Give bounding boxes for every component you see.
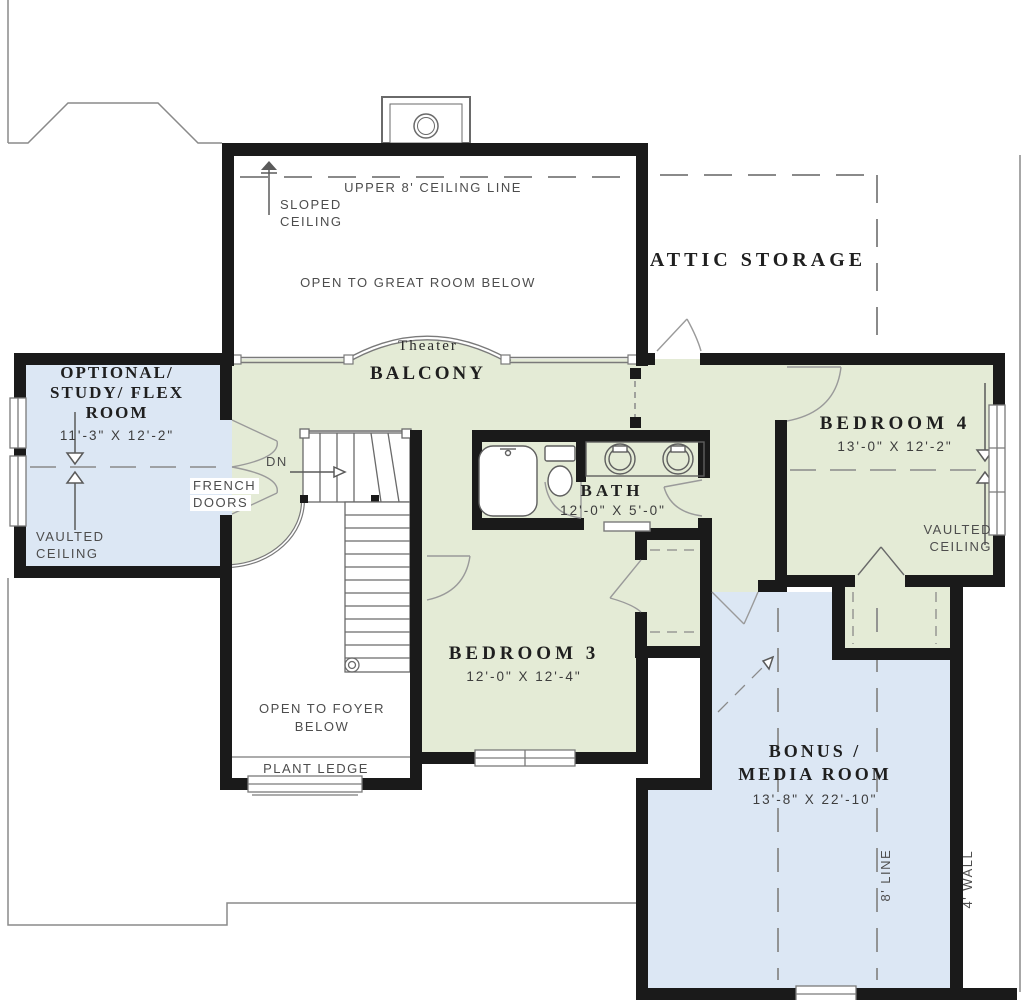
- label-bath-dims: 12'-0" X 5'-0": [560, 504, 666, 519]
- floor-plan-drawing: [0, 0, 1024, 1000]
- label-study-vaulted-2: CEILING: [36, 547, 99, 561]
- label-french-doors-2: DOORS: [190, 495, 251, 511]
- label-8ft-line: 8' LINE: [879, 835, 893, 915]
- label-4ft-wall: 4' WALL: [961, 839, 975, 919]
- label-study-1: OPTIONAL/: [60, 364, 173, 382]
- label-bedroom4-vaulted-2: CEILING: [892, 540, 992, 554]
- chimney: [382, 97, 470, 143]
- label-attic-storage: ATTIC STORAGE: [650, 250, 866, 271]
- label-bonus-dims: 13'-8" X 22'-10": [753, 793, 878, 808]
- label-study-vaulted-1: VAULTED: [36, 530, 105, 544]
- label-sloped-ceiling-2: CEILING: [280, 215, 343, 229]
- label-french-doors-1: FRENCH: [190, 478, 259, 494]
- label-stairs-dn: DN: [266, 455, 288, 469]
- label-plant-ledge: PLANT LEDGE: [263, 762, 369, 776]
- label-open-to-great-room: OPEN TO GREAT ROOM BELOW: [300, 276, 536, 290]
- label-bedroom4-dims: 13'-0" X 12'-2": [837, 440, 952, 455]
- label-theater: Theater: [398, 338, 458, 355]
- label-sloped-ceiling-1: SLOPED: [280, 198, 342, 212]
- floor-plan: UPPER 8' CEILING LINE SLOPED CEILING OPE…: [0, 0, 1024, 1000]
- label-study-3: ROOM: [86, 404, 149, 422]
- label-bedroom4-vaulted-1: VAULTED: [892, 523, 992, 537]
- label-balcony: BALCONY: [370, 364, 486, 384]
- label-bedroom3: BEDROOM 3: [449, 644, 600, 664]
- label-open-to-foyer-1: OPEN TO FOYER: [259, 702, 385, 716]
- label-bedroom4: BEDROOM 4: [820, 414, 971, 434]
- label-study-dims: 11'-3" X 12'-2": [60, 429, 174, 444]
- stairs: [300, 429, 411, 672]
- label-bonus-1: BONUS /: [769, 742, 862, 761]
- bathtub: [479, 446, 537, 516]
- linen-ledge: [604, 522, 650, 531]
- label-bonus-2: MEDIA ROOM: [738, 765, 892, 784]
- label-bedroom3-dims: 12'-0" X 12'-4": [466, 670, 581, 685]
- label-upper-ceiling-line: UPPER 8' CEILING LINE: [341, 180, 525, 196]
- label-study-2: STUDY/ FLEX: [50, 384, 184, 402]
- label-bath: BATH: [581, 482, 644, 500]
- label-open-to-foyer-2: BELOW: [295, 720, 349, 734]
